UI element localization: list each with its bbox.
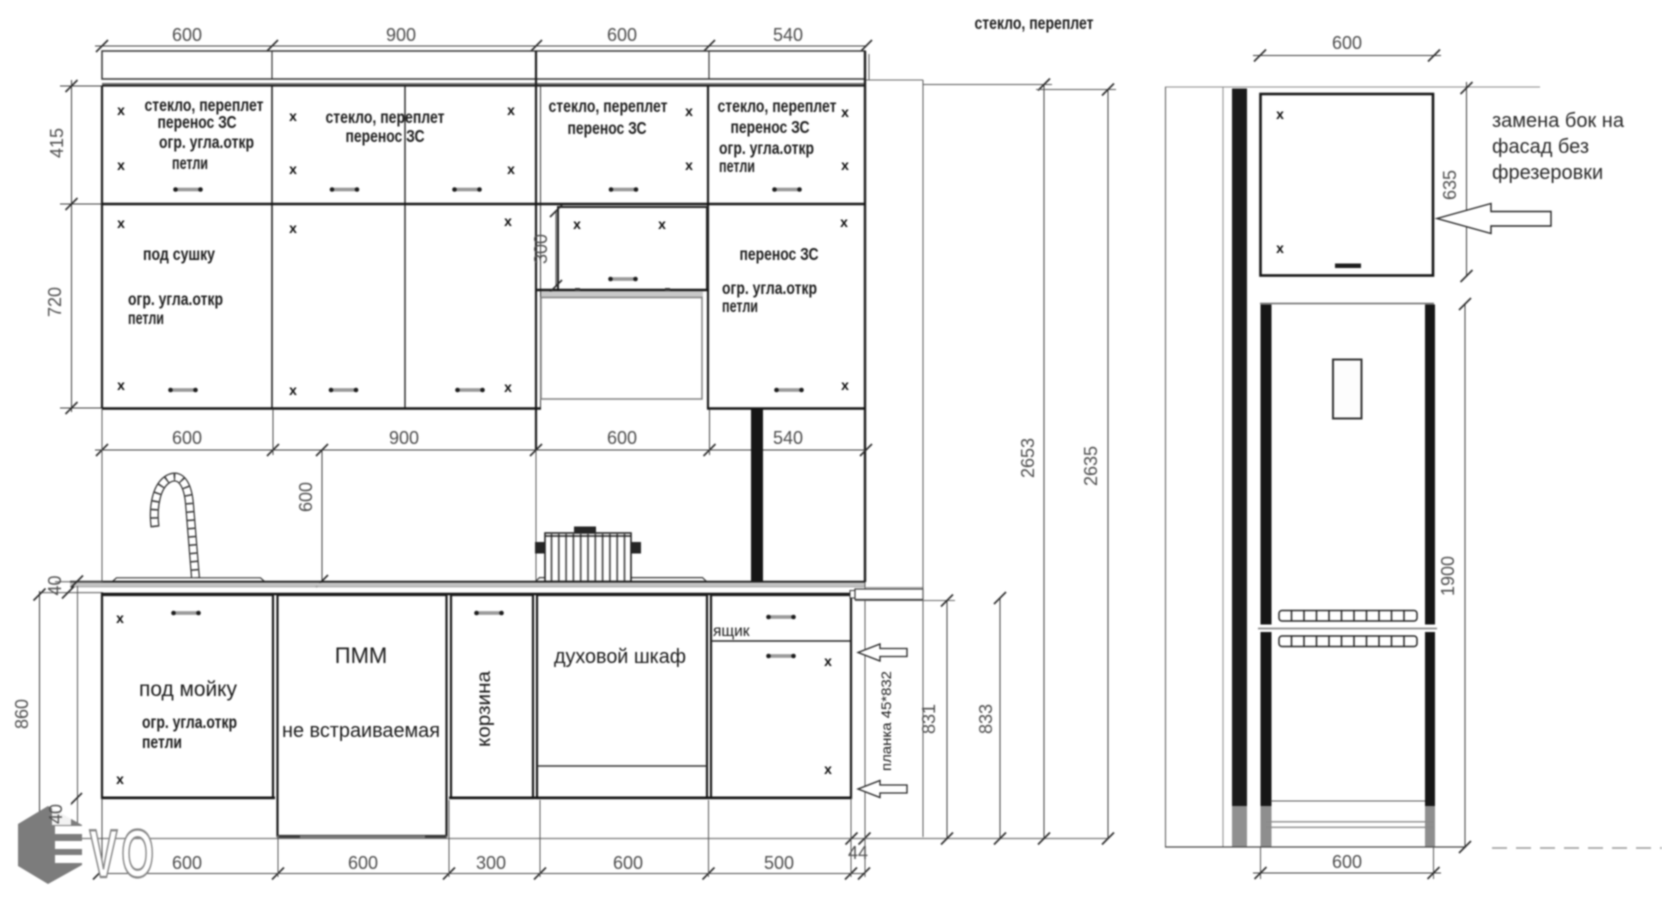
svg-text:стекло, переплет: стекло, переплет <box>549 96 668 116</box>
svg-text:перенос ЗС: перенос ЗС <box>346 126 425 146</box>
svg-text:x: x <box>117 215 125 231</box>
svg-text:под мойку: под мойку <box>139 678 237 701</box>
svg-text:стекло, переплет: стекло, переплет <box>718 96 837 116</box>
svg-text:огр. угла.откр: огр. угла.откр <box>128 289 223 309</box>
svg-text:600: 600 <box>607 25 637 45</box>
svg-text:петли: петли <box>172 153 208 173</box>
svg-text:x: x <box>289 108 297 124</box>
svg-text:фрезеровки: фрезеровки <box>1492 162 1603 184</box>
svg-text:x: x <box>289 220 297 236</box>
svg-text:x: x <box>840 214 848 230</box>
svg-text:перенос ЗС: перенос ЗС <box>158 112 237 132</box>
svg-text:540: 540 <box>773 428 803 448</box>
svg-text:1900: 1900 <box>1438 556 1458 596</box>
svg-text:600: 600 <box>348 853 378 873</box>
svg-text:x: x <box>116 771 124 787</box>
svg-text:600: 600 <box>1332 852 1362 872</box>
svg-text:духовой шкаф: духовой шкаф <box>554 646 686 668</box>
svg-text:стекло, переплет: стекло, переплет <box>975 13 1094 33</box>
svg-text:2653: 2653 <box>1018 438 1038 478</box>
svg-text:планка 45*832: планка 45*832 <box>879 671 894 771</box>
svg-text:под сушку: под сушку <box>143 244 215 264</box>
svg-text:x: x <box>116 610 124 626</box>
svg-text:720: 720 <box>45 287 65 317</box>
svg-text:перенос ЗС: перенос ЗС <box>731 117 810 137</box>
svg-text:500: 500 <box>764 853 794 873</box>
svg-text:600: 600 <box>296 482 316 512</box>
svg-text:300: 300 <box>476 853 506 873</box>
svg-text:перенос ЗС: перенос ЗС <box>740 244 819 264</box>
svg-text:x: x <box>1276 106 1284 122</box>
svg-text:O: O <box>121 816 154 892</box>
svg-text:x: x <box>841 377 849 393</box>
svg-text:900: 900 <box>389 428 419 448</box>
svg-text:перенос ЗС: перенос ЗС <box>568 118 647 138</box>
svg-text:замена бок на: замена бок на <box>1492 110 1625 132</box>
svg-text:600: 600 <box>1332 33 1362 53</box>
svg-text:831: 831 <box>919 704 939 734</box>
svg-text:фасад без: фасад без <box>1492 136 1589 158</box>
svg-text:корзина: корзина <box>474 671 495 747</box>
svg-text:x: x <box>841 157 849 173</box>
svg-text:x: x <box>289 382 297 398</box>
svg-text:300: 300 <box>531 234 551 264</box>
svg-text:огр. угла.откр: огр. угла.откр <box>159 132 254 152</box>
svg-text:40: 40 <box>46 804 66 824</box>
svg-text:635: 635 <box>1440 170 1460 200</box>
svg-text:2635: 2635 <box>1081 446 1101 486</box>
svg-text:огр. угла.откр: огр. угла.откр <box>722 278 817 298</box>
svg-text:833: 833 <box>976 704 996 734</box>
svg-text:x: x <box>289 161 297 177</box>
svg-text:не встраиваемая: не встраиваемая <box>282 720 440 742</box>
svg-text:x: x <box>504 379 512 395</box>
svg-text:540: 540 <box>773 25 803 45</box>
svg-text:x: x <box>507 161 515 177</box>
svg-text:x: x <box>504 213 512 229</box>
svg-text:600: 600 <box>172 25 202 45</box>
svg-text:x: x <box>685 157 693 173</box>
svg-text:петли: петли <box>719 156 755 176</box>
svg-text:x: x <box>824 653 832 669</box>
svg-text:x: x <box>507 102 515 118</box>
svg-text:петли: петли <box>128 308 164 328</box>
svg-text:x: x <box>573 216 581 232</box>
svg-text:600: 600 <box>172 428 202 448</box>
svg-text:900: 900 <box>386 25 416 45</box>
svg-text:x: x <box>658 216 666 232</box>
svg-text:600: 600 <box>172 853 202 873</box>
svg-text:600: 600 <box>607 428 637 448</box>
svg-text:x: x <box>117 157 125 173</box>
svg-text:ящик: ящик <box>713 623 750 640</box>
svg-text:стекло, переплет: стекло, переплет <box>326 107 445 127</box>
svg-text:x: x <box>685 103 693 119</box>
svg-text:x: x <box>117 377 125 393</box>
svg-text:огр. угла.откр: огр. угла.откр <box>719 138 814 158</box>
svg-text:ПММ: ПММ <box>335 643 387 668</box>
svg-text:x: x <box>117 102 125 118</box>
svg-text:V: V <box>89 816 117 892</box>
svg-text:415: 415 <box>47 128 67 158</box>
svg-text:860: 860 <box>12 699 32 729</box>
svg-text:петли: петли <box>722 296 758 316</box>
svg-text:x: x <box>1276 240 1284 256</box>
svg-text:огр. угла.откр: огр. угла.откр <box>142 712 237 732</box>
svg-text:40: 40 <box>45 575 65 595</box>
svg-text:x: x <box>841 104 849 120</box>
svg-text:петли: петли <box>142 732 182 752</box>
svg-text:600: 600 <box>613 853 643 873</box>
svg-text:x: x <box>824 761 832 777</box>
